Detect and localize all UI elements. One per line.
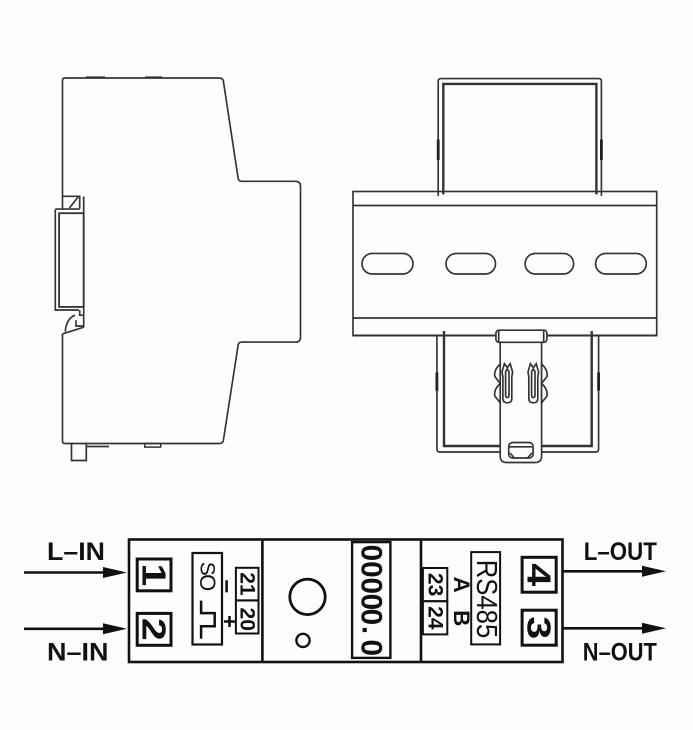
- svg-text:0: 0: [354, 544, 387, 561]
- svg-text:RS485: RS485: [470, 560, 502, 639]
- svg-text:4: 4: [521, 563, 558, 586]
- svg-text:L–OUT: L–OUT: [584, 538, 657, 566]
- svg-text:21: 21: [235, 572, 258, 596]
- svg-text:N–OUT: N–OUT: [583, 638, 657, 666]
- svg-text:20: 20: [235, 608, 258, 631]
- svg-text:24: 24: [424, 606, 447, 630]
- svg-text:N–IN: N–IN: [47, 639, 109, 667]
- svg-text:0: 0: [354, 609, 387, 626]
- svg-text:23: 23: [424, 573, 447, 596]
- svg-text:1: 1: [136, 563, 173, 586]
- svg-text:2: 2: [136, 618, 173, 641]
- svg-text:3: 3: [521, 616, 558, 639]
- svg-text:O: O: [195, 574, 220, 591]
- svg-text:0: 0: [354, 577, 387, 594]
- svg-text:0: 0: [354, 561, 387, 578]
- svg-text:0: 0: [354, 639, 387, 656]
- svg-text:L–IN: L–IN: [47, 538, 105, 566]
